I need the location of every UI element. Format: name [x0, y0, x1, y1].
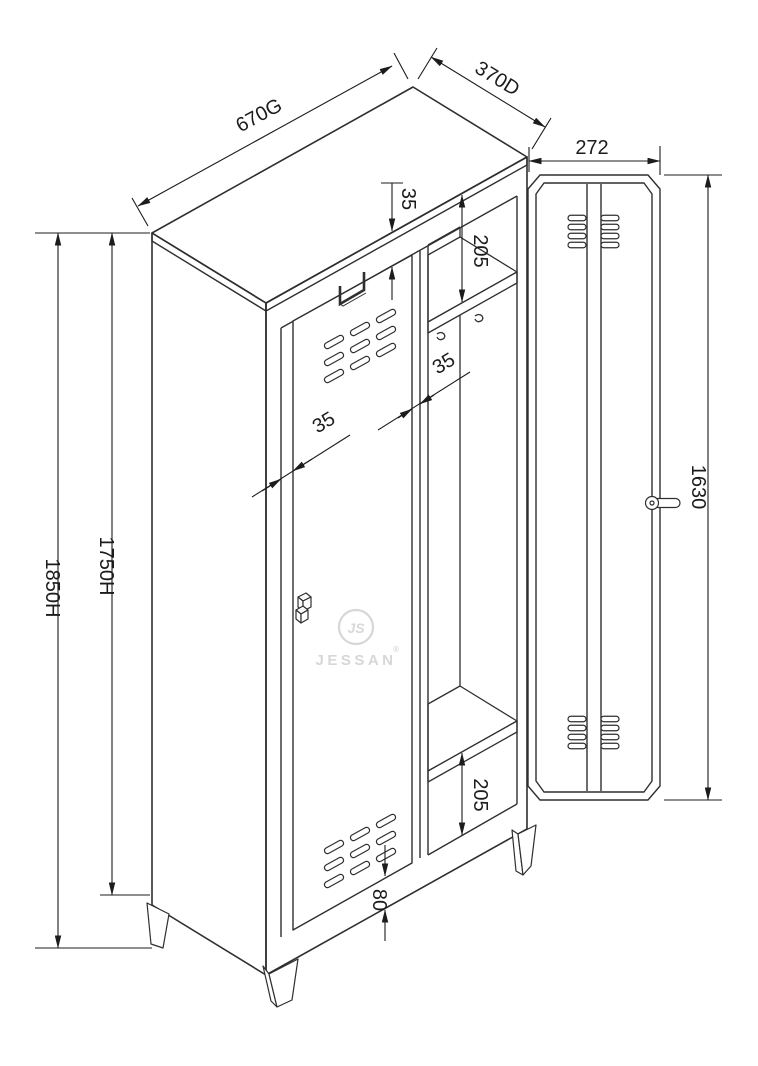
dim-door-height-label: 1630: [687, 465, 709, 510]
key-lock-icon: [646, 497, 681, 510]
open-door: [528, 175, 680, 800]
dimension-bottom-shelf-205: 205: [462, 753, 491, 835]
dim-mid-door-edge-label: 35: [429, 349, 459, 379]
dimension-depth-370d: 370D: [418, 48, 551, 149]
dim-width-label: 670G: [232, 94, 286, 137]
cabinet-side-panel: [152, 233, 266, 975]
interior-compartment: [428, 227, 517, 782]
foot-back-left: [147, 903, 169, 948]
dimension-width-670g: 670G: [132, 53, 408, 226]
dimension-overall-height-1850h: 1850H: [35, 233, 152, 948]
dim-top-rail-gap-label: 35: [397, 188, 419, 210]
left-door: [293, 255, 412, 930]
dim-bottom-shelf-label: 205: [469, 778, 491, 811]
interior-bottom-shelf: [428, 686, 517, 782]
foot-front-right: [512, 825, 536, 875]
dim-depth-label: 370D: [471, 57, 523, 101]
dimension-door-height-1630: 1630: [664, 175, 722, 800]
cabinet-body: JS JESSAN ®: [147, 87, 680, 1007]
brand-name: JESSAN: [315, 652, 396, 669]
dim-base-rail-label: 80: [368, 889, 390, 911]
dim-top-shelf-label: 205: [469, 234, 491, 267]
dimension-body-height-1750h: 1750H: [95, 233, 150, 895]
dim-overall-height-label: 1850H: [41, 559, 63, 618]
brand-monogram: JS: [347, 620, 365, 636]
dimension-open-door-width-272: 272: [529, 137, 660, 175]
dim-body-height-label: 1750H: [95, 537, 117, 596]
coat-hook-icon: [475, 315, 483, 322]
dim-open-door-width-label: 272: [575, 137, 608, 159]
coat-hook-icon: [437, 333, 445, 340]
technical-drawing-sheet: JS JESSAN ®: [0, 0, 758, 1066]
locker-dimension-drawing: JS JESSAN ®: [0, 0, 758, 1066]
registered-trademark-icon: ®: [393, 645, 399, 654]
